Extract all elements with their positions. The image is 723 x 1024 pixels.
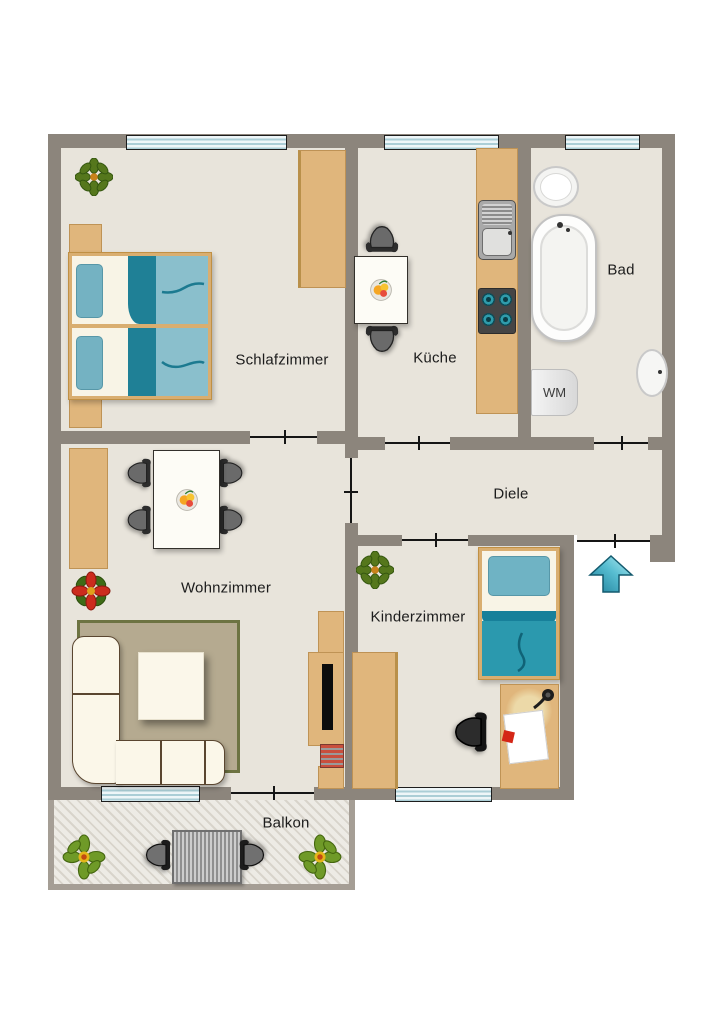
diele-label: Diele xyxy=(493,486,528,503)
bad-window xyxy=(565,135,640,150)
balcony-door xyxy=(231,792,314,794)
tv-icon xyxy=(322,664,333,730)
washbasin-icon xyxy=(636,349,668,397)
wall xyxy=(345,450,358,458)
wall xyxy=(48,787,101,800)
wohnzimmer-door xyxy=(350,458,352,523)
balcony-plant-icon xyxy=(298,834,342,880)
sideboard xyxy=(69,448,108,569)
wall xyxy=(468,535,560,546)
kinderzimmer-window xyxy=(395,787,492,802)
wardrobe xyxy=(298,150,346,288)
fruit-bowl-icon xyxy=(368,277,394,303)
tv-sideboard xyxy=(318,766,344,789)
kueche-door xyxy=(385,442,450,444)
desk-paper xyxy=(503,710,549,765)
dining-table xyxy=(153,450,220,549)
washing-machine: WM xyxy=(531,369,578,416)
balkon-label: Balkon xyxy=(262,815,309,832)
wohnzimmer-window xyxy=(101,786,200,802)
kinderzimmer-door xyxy=(402,539,468,541)
wall xyxy=(450,437,594,450)
kinderzimmer-label: Kinderzimmer xyxy=(371,609,466,626)
floor-plan: Schlafzimmer Küche WM Bad Diele xyxy=(0,0,723,1024)
chair xyxy=(123,457,157,489)
wardrobe xyxy=(352,652,398,789)
wall xyxy=(560,535,574,800)
flower-plant-icon xyxy=(71,571,111,611)
wall xyxy=(648,437,675,450)
balcony-wall xyxy=(349,800,355,890)
chair xyxy=(363,224,401,256)
entry-door xyxy=(577,540,650,542)
balcony-plant-icon xyxy=(62,834,106,880)
wall xyxy=(518,148,531,437)
kitchen-table xyxy=(354,256,408,324)
wall xyxy=(650,535,675,562)
washing-machine-label: WM xyxy=(543,385,566,400)
kitchen-sink-icon xyxy=(478,200,516,260)
balcony-chair xyxy=(140,838,178,872)
fruit-bowl-icon xyxy=(174,487,200,513)
plant-icon xyxy=(356,551,394,589)
wall xyxy=(358,535,402,546)
stove-icon xyxy=(478,288,516,334)
bad-door xyxy=(594,442,648,444)
schlafzimmer-window xyxy=(126,135,287,150)
wall xyxy=(61,431,250,444)
nightstand xyxy=(69,224,102,254)
balcony-wall xyxy=(48,800,54,890)
plant-icon xyxy=(75,158,113,196)
nightstand xyxy=(69,398,102,428)
bathtub-icon xyxy=(531,214,597,342)
schlafzimmer-door xyxy=(250,436,317,438)
chair xyxy=(123,504,157,536)
radiator-icon xyxy=(320,744,344,768)
wall xyxy=(48,134,61,800)
single-bed xyxy=(478,547,560,680)
schlafzimmer-label: Schlafzimmer xyxy=(235,352,328,369)
wall xyxy=(662,134,675,551)
bad-label: Bad xyxy=(607,262,634,279)
entry-arrow-icon xyxy=(588,554,634,594)
balcony-chair xyxy=(232,838,270,872)
kueche-label: Küche xyxy=(413,350,457,367)
chair xyxy=(363,322,401,354)
tv-sideboard xyxy=(318,611,344,654)
wohnzimmer-label: Wohnzimmer xyxy=(181,580,271,597)
corner-sofa xyxy=(116,740,225,785)
kitchen-counter xyxy=(476,148,518,414)
wall xyxy=(198,787,231,800)
balcony-wall xyxy=(48,884,355,890)
coffee-table xyxy=(138,652,204,720)
corner-sofa xyxy=(72,636,120,784)
double-bed xyxy=(68,252,212,400)
desk-chair xyxy=(452,710,492,754)
toilet-icon xyxy=(533,166,579,208)
